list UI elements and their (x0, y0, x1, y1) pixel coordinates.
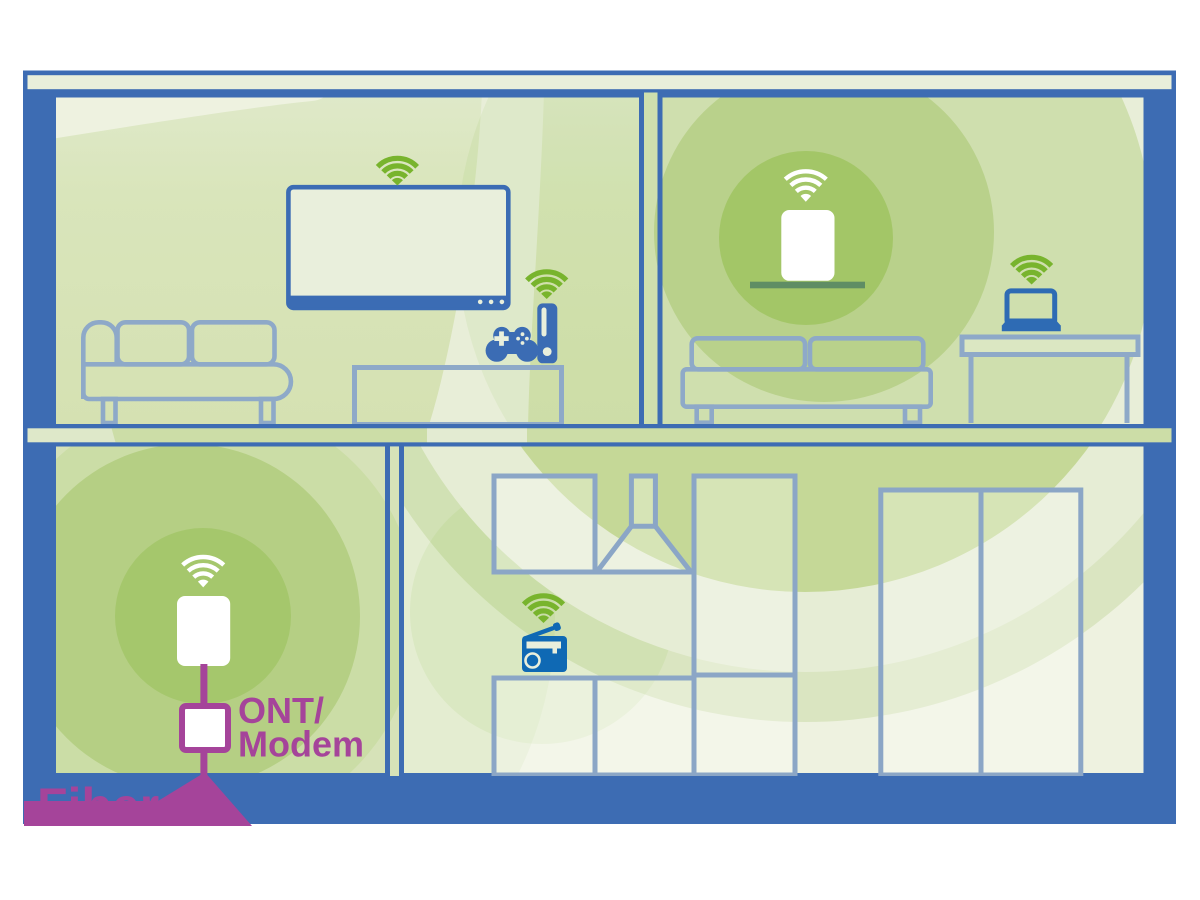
svg-text:Modem: Modem (238, 724, 364, 765)
